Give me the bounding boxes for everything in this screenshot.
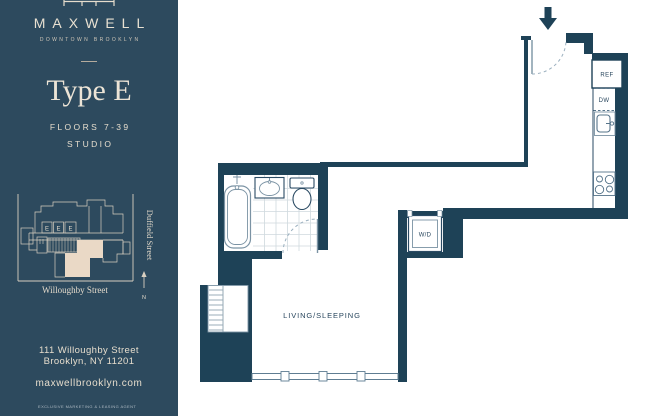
unit-location-highlight	[65, 240, 103, 277]
unit-markers: E E E	[42, 222, 76, 233]
entry-door	[532, 40, 566, 74]
floorplan-drawing: LIVING/SLEEPING W/D REF DW	[178, 0, 652, 416]
street-label-duffield: Duffield Street	[145, 210, 155, 261]
unit-type-title: Type E	[0, 74, 178, 108]
entry-arrow-icon	[539, 7, 557, 30]
window-band	[252, 372, 398, 382]
north-label: N	[142, 295, 146, 301]
unit-floors: FLOORS 7-39	[0, 122, 178, 132]
closet-radiator	[208, 286, 248, 333]
unit-marker-e1: E	[45, 227, 49, 233]
floorplan-page: MAXWELL DOWNTOWN BROOKLYN Type E FLOORS …	[0, 0, 652, 416]
unit-layout: STUDIO	[0, 139, 178, 149]
bathroom-door	[283, 219, 318, 253]
label-dishwasher: DW	[599, 98, 610, 104]
washer-dryer	[408, 211, 443, 252]
north-arrow-icon	[141, 271, 146, 288]
kitchen-sink	[595, 112, 616, 136]
corridor-hatch	[37, 237, 80, 253]
footer-note: EXCLUSIVE MARKETING & LEASING AGENT	[38, 404, 136, 409]
brand-name: MAXWELL	[0, 15, 178, 31]
address-block: 111 Willoughby Street Brooklyn, NY 11201	[0, 345, 178, 367]
sidebar: MAXWELL DOWNTOWN BROOKLYN Type E FLOORS …	[0, 0, 178, 416]
unit-marker-e2: E	[56, 227, 60, 233]
label-washer-dryer: W/D	[419, 233, 432, 239]
street-label-willoughby: Willoughby Street	[42, 285, 108, 295]
bathroom-sink	[255, 178, 284, 199]
website-text: maxwellbrooklyn.com	[0, 378, 178, 389]
bathtub	[225, 175, 251, 248]
divider	[81, 61, 97, 62]
bridge-logo-icon	[61, 0, 117, 9]
brand-tagline: DOWNTOWN BROOKLYN	[0, 37, 178, 43]
unit-marker-e3: E	[68, 227, 72, 233]
address-line2: Brooklyn, NY 11201	[0, 356, 178, 367]
cooktop	[594, 172, 616, 196]
label-living-sleeping: LIVING/SLEEPING	[283, 311, 361, 320]
keyplan-map: E E E Duffield Street Willoughby Street …	[13, 192, 165, 304]
label-refrigerator: REF	[600, 73, 613, 79]
address-line1: 111 Willoughby Street	[0, 345, 178, 356]
